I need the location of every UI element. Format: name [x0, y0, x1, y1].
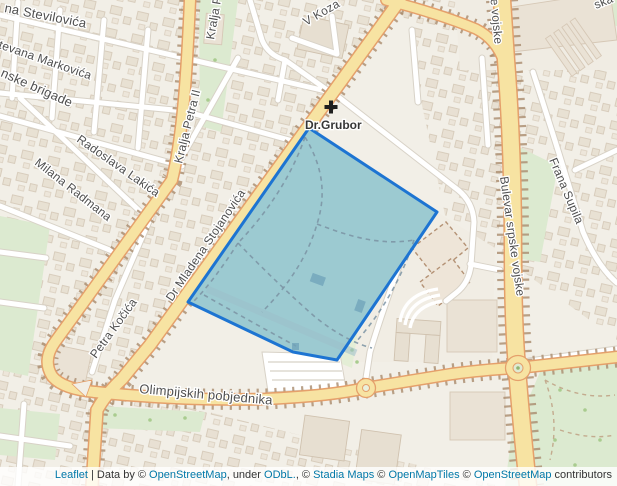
stadia-maps-link[interactable]: Stadia Maps	[313, 469, 374, 481]
roundabout-small	[357, 379, 376, 398]
poi-label: Dr.Grubor	[305, 118, 362, 132]
leaflet-link[interactable]: Leaflet	[55, 469, 88, 481]
attribution-bar: Leaflet | Data by © OpenStreetMap, under…	[0, 467, 617, 486]
osm-link[interactable]: OpenStreetMap	[149, 469, 227, 481]
odbl-link[interactable]: ODbL.	[264, 469, 296, 481]
openmaptiles-link[interactable]: OpenMapTiles	[388, 469, 459, 481]
osm-contributors-link[interactable]: OpenStreetMap	[474, 469, 552, 481]
roundabout-bulevar	[506, 356, 531, 381]
map-viewport[interactable]: na Stevilovića tevana Markovića nske bri…	[0, 0, 617, 486]
attribution-text: | Data by ©	[88, 469, 149, 481]
map-tiles: na Stevilovića tevana Markovića nske bri…	[0, 0, 617, 486]
